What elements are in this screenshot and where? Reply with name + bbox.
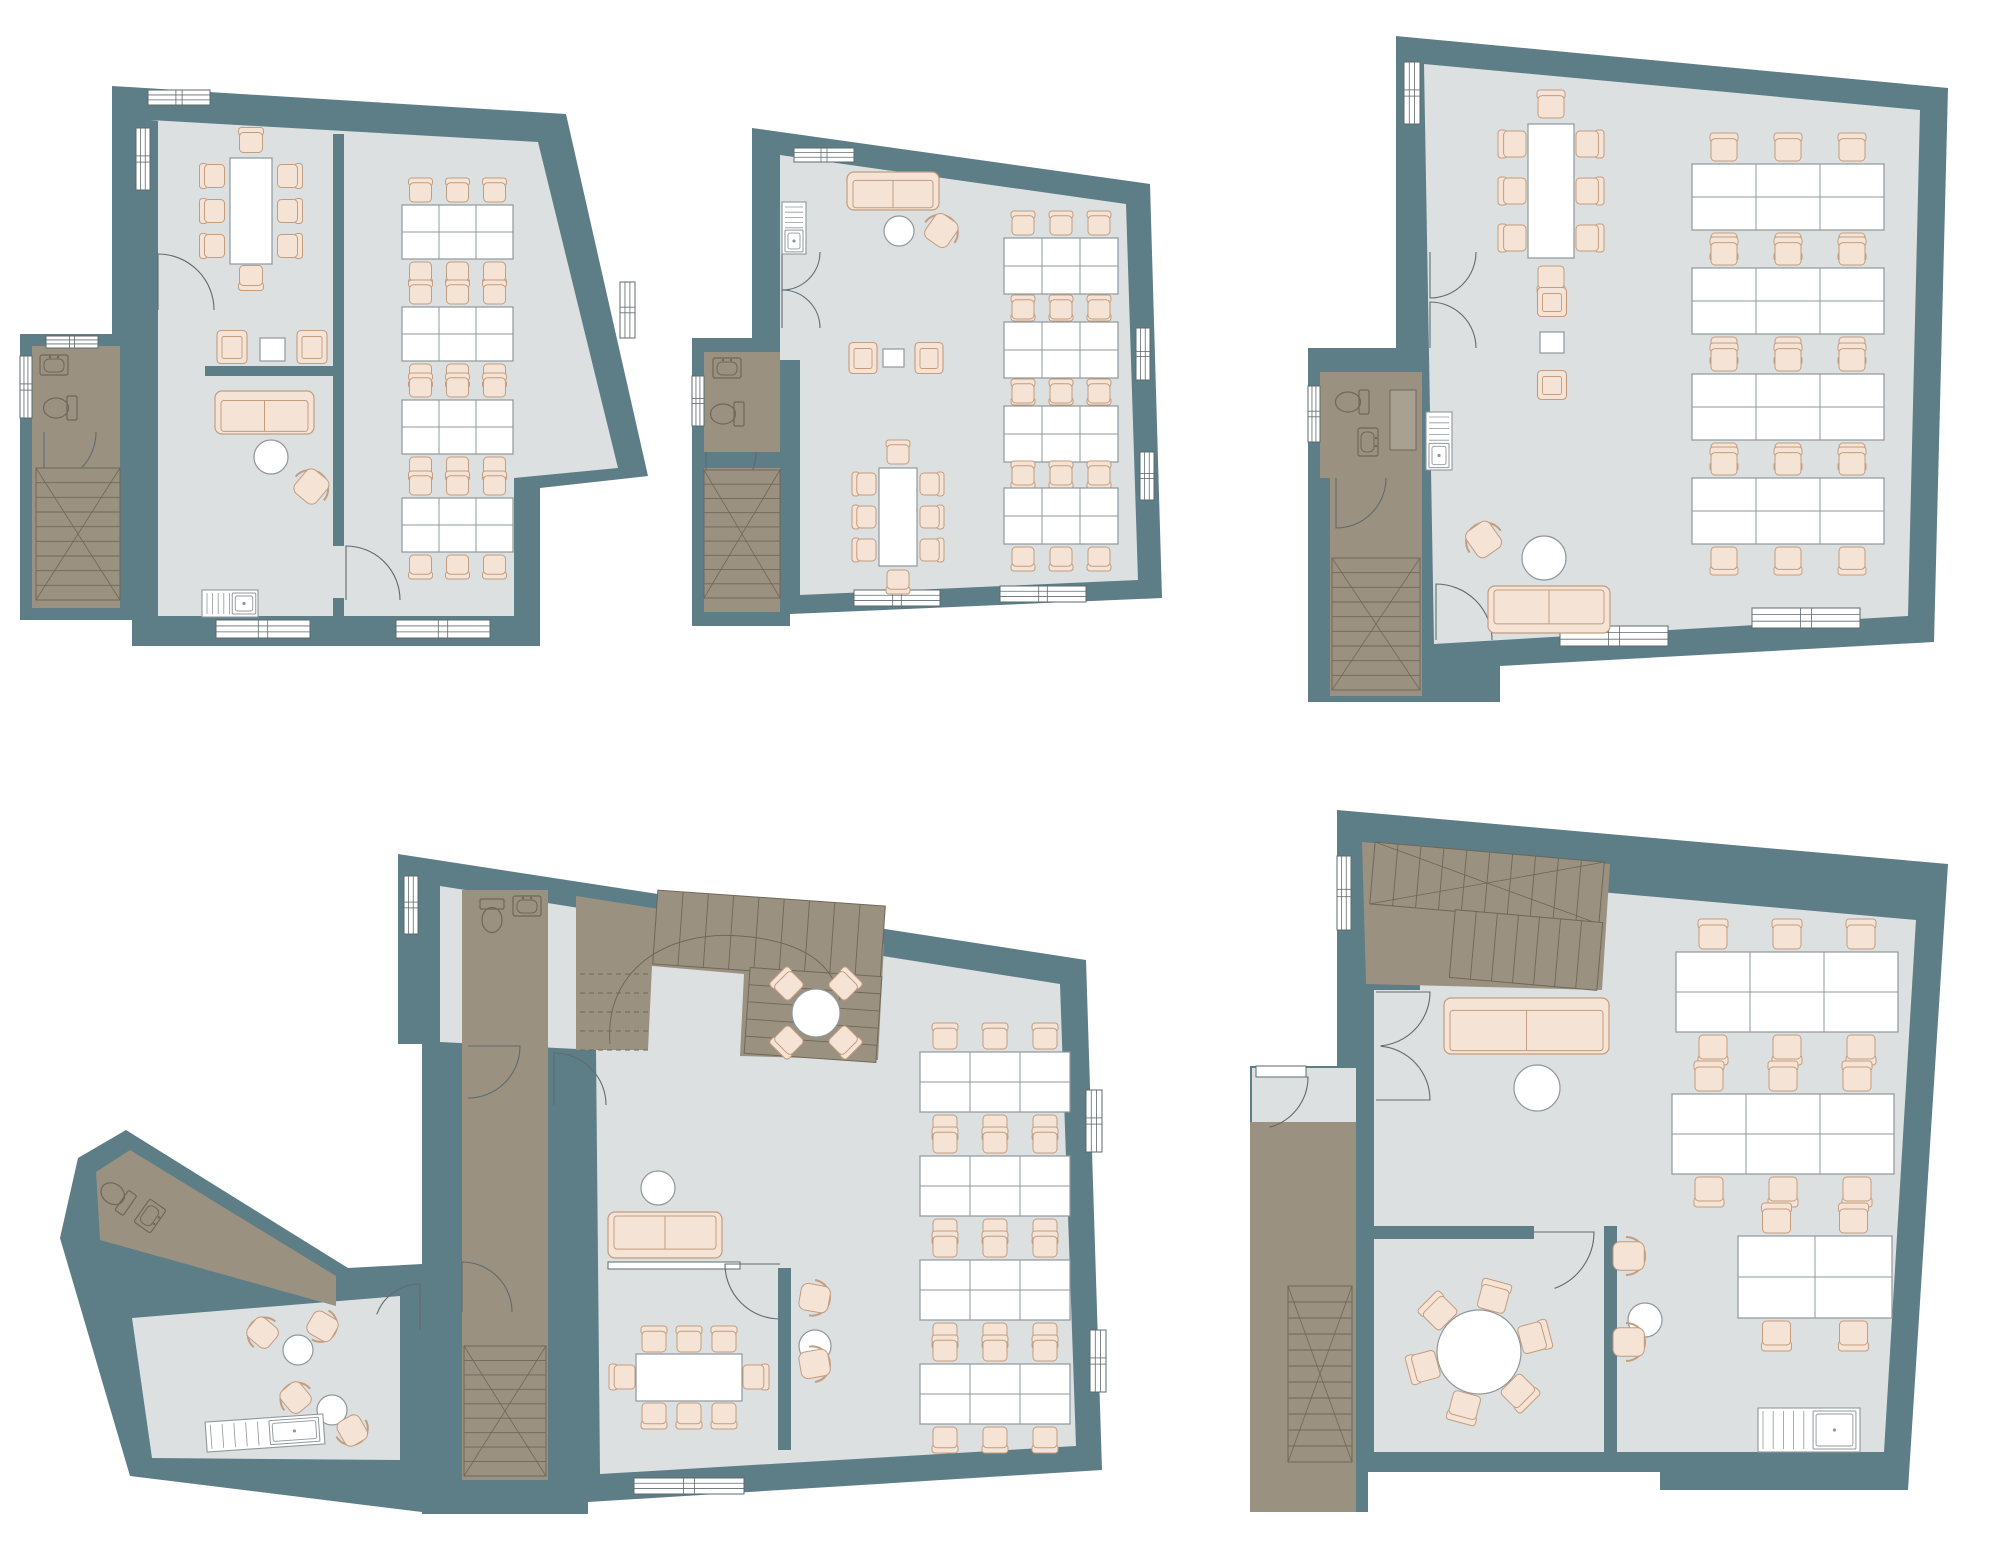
chair: [1838, 447, 1866, 475]
chair: [446, 280, 470, 304]
armchair: [915, 343, 943, 374]
round-table: [283, 1335, 313, 1365]
chair: [1087, 295, 1111, 319]
chair: [1762, 1321, 1792, 1351]
table: [260, 338, 285, 361]
chair: [1011, 211, 1035, 235]
kitchen-sink: [1758, 1408, 1860, 1452]
chair: [920, 505, 944, 529]
door-leaf: [1256, 1066, 1306, 1077]
window: [620, 282, 635, 338]
window: [1000, 586, 1086, 602]
chair: [1838, 237, 1866, 265]
chair: [1032, 1231, 1058, 1257]
desk-bank: [1672, 1061, 1894, 1207]
window: [148, 90, 210, 105]
chair: [1774, 343, 1802, 371]
desk-bank: [1692, 447, 1884, 575]
round-table: [254, 440, 288, 474]
chair: [1537, 90, 1565, 118]
window: [1140, 452, 1154, 500]
staircase: [653, 890, 886, 980]
chair: [932, 1023, 958, 1049]
chair: [1087, 547, 1111, 571]
chair: [609, 1364, 635, 1390]
chair: [1774, 547, 1802, 575]
chair: [1049, 379, 1073, 403]
round-table: [1522, 536, 1566, 580]
window: [46, 336, 98, 348]
table: [879, 468, 917, 566]
chair: [1774, 133, 1802, 161]
kitchen-sink: [202, 590, 258, 617]
glass-partition: [608, 1262, 740, 1269]
chair: [641, 1326, 667, 1352]
chair: [1087, 379, 1111, 403]
chair: [932, 1427, 958, 1453]
chair: [982, 1427, 1008, 1453]
staircase: [1449, 910, 1602, 991]
staircase: [1288, 1286, 1352, 1462]
chair: [409, 178, 433, 202]
chair: [1049, 547, 1073, 571]
chair: [200, 234, 225, 259]
table: [1528, 124, 1574, 258]
window: [1136, 328, 1150, 380]
chair: [446, 471, 470, 495]
wall: [1368, 1226, 1534, 1239]
chair: [278, 234, 303, 259]
chair: [1762, 1203, 1792, 1233]
floor-plan-top-middle: [692, 128, 1162, 626]
chair: [1710, 343, 1738, 371]
service-area: [462, 890, 548, 1044]
armchair: [217, 331, 247, 364]
chair: [483, 178, 507, 202]
chair: [982, 1335, 1008, 1361]
window: [1337, 856, 1351, 930]
window: [396, 620, 490, 638]
window: [1752, 608, 1860, 628]
chair: [1698, 919, 1728, 949]
chair: [932, 1127, 958, 1153]
desk-bank: [920, 1231, 1070, 1349]
staircase: [704, 470, 780, 598]
chair: [920, 538, 944, 562]
desk-bank: [920, 1023, 1070, 1141]
window: [634, 1478, 744, 1494]
chair: [446, 555, 470, 579]
wall: [333, 134, 344, 546]
desk-bank: [402, 178, 513, 286]
floor-plan-top-left: [20, 86, 648, 646]
window: [794, 148, 854, 162]
window: [1308, 386, 1320, 442]
chair: [1694, 1061, 1724, 1091]
chair: [1772, 919, 1802, 949]
chair: [982, 1127, 1008, 1153]
chair: [886, 570, 910, 594]
chair: [446, 178, 470, 202]
desk-bank: [1004, 461, 1118, 571]
chair: [409, 471, 433, 495]
chair: [1498, 224, 1526, 252]
chair: [852, 538, 876, 562]
chair: [1839, 1203, 1869, 1233]
chair: [1032, 1127, 1058, 1153]
chair: [1032, 1335, 1058, 1361]
window: [1086, 1090, 1102, 1152]
chair: [483, 471, 507, 495]
chair: [982, 1231, 1008, 1257]
chair: [852, 505, 876, 529]
table: [1540, 332, 1564, 353]
desk-bank: [920, 1127, 1070, 1245]
round-table: [1437, 1310, 1521, 1394]
window: [404, 876, 418, 934]
chair: [409, 280, 433, 304]
chair: [886, 440, 910, 464]
chair: [409, 555, 433, 579]
desk-bank: [402, 280, 513, 388]
round-table: [884, 216, 914, 246]
armchair: [1538, 288, 1567, 317]
chair: [1838, 133, 1866, 161]
table: [636, 1354, 742, 1401]
staircase: [36, 468, 120, 600]
swivel-chair: [1613, 1237, 1645, 1275]
chair: [676, 1403, 702, 1429]
chair: [200, 164, 225, 189]
chair: [1087, 461, 1111, 485]
chair: [711, 1326, 737, 1352]
wall: [778, 1268, 791, 1450]
chair: [1032, 1023, 1058, 1049]
armchair: [849, 343, 877, 374]
chair: [278, 199, 303, 224]
chair: [932, 1335, 958, 1361]
chair: [1846, 919, 1876, 949]
floor-plan-bottom-right: [1250, 810, 1948, 1512]
chair: [1839, 1321, 1869, 1351]
chair: [743, 1364, 769, 1390]
desk-bank: [402, 471, 513, 579]
armchair: [297, 331, 327, 364]
chair: [920, 472, 944, 496]
chair: [1838, 343, 1866, 371]
chair: [1710, 447, 1738, 475]
chair: [1498, 177, 1526, 205]
chair: [1710, 237, 1738, 265]
wall: [205, 366, 339, 376]
chair: [483, 280, 507, 304]
chair: [200, 199, 225, 224]
chair: [239, 128, 264, 153]
chair: [1774, 237, 1802, 265]
sofa: [847, 172, 939, 210]
window: [20, 356, 32, 418]
window: [1404, 62, 1420, 124]
plan-canvas: [0, 0, 2000, 1545]
window: [1090, 1330, 1106, 1392]
chair: [1768, 1061, 1798, 1091]
chair: [1576, 177, 1604, 205]
armchair: [1538, 371, 1567, 400]
staircase: [464, 1346, 546, 1476]
round-table: [792, 989, 840, 1037]
service-area: [1330, 478, 1422, 556]
chair: [1011, 461, 1035, 485]
table: [883, 349, 904, 367]
sofa: [215, 391, 314, 434]
chair: [1842, 1061, 1872, 1091]
chair: [1838, 547, 1866, 575]
chair: [1576, 224, 1604, 252]
vanity-counter: [1390, 390, 1416, 450]
window: [216, 620, 310, 638]
chair: [1710, 133, 1738, 161]
round-table: [1514, 1065, 1560, 1111]
chair: [1032, 1427, 1058, 1453]
window: [136, 128, 150, 190]
kitchen-sink: [1426, 412, 1452, 470]
desk-bank: [920, 1335, 1070, 1453]
chair: [1049, 211, 1073, 235]
chair: [483, 555, 507, 579]
chair: [932, 1231, 958, 1257]
chair: [483, 373, 507, 397]
desk-bank: [402, 373, 513, 481]
kitchen-sink: [782, 202, 806, 254]
chair: [1710, 547, 1738, 575]
staircase: [1332, 558, 1420, 690]
chair: [1576, 130, 1604, 158]
chair: [278, 164, 303, 189]
swivel-chair: [1613, 1323, 1645, 1361]
chair: [1694, 1177, 1724, 1207]
window: [692, 376, 704, 426]
sofa: [608, 1212, 722, 1258]
round-table: [641, 1171, 675, 1205]
chair: [852, 472, 876, 496]
floor-plan-bottom-left: [60, 854, 1106, 1514]
chair: [1498, 130, 1526, 158]
chair: [446, 373, 470, 397]
chair: [982, 1023, 1008, 1049]
chair: [1087, 211, 1111, 235]
chair: [1011, 547, 1035, 571]
desk-bank: [1676, 919, 1898, 1065]
floor-plan-sheet: [0, 0, 2000, 1545]
chair: [1049, 295, 1073, 319]
wall: [333, 598, 344, 616]
sofa: [1488, 586, 1610, 633]
chair: [1049, 461, 1073, 485]
floor-plan-top-right: [1308, 36, 1948, 702]
chair: [1011, 295, 1035, 319]
sofa: [1444, 998, 1609, 1054]
chair: [1774, 447, 1802, 475]
table: [230, 158, 272, 264]
chair: [1011, 379, 1035, 403]
chair: [409, 373, 433, 397]
chair: [676, 1326, 702, 1352]
chair: [711, 1403, 737, 1429]
chair: [239, 266, 264, 291]
chair: [641, 1403, 667, 1429]
